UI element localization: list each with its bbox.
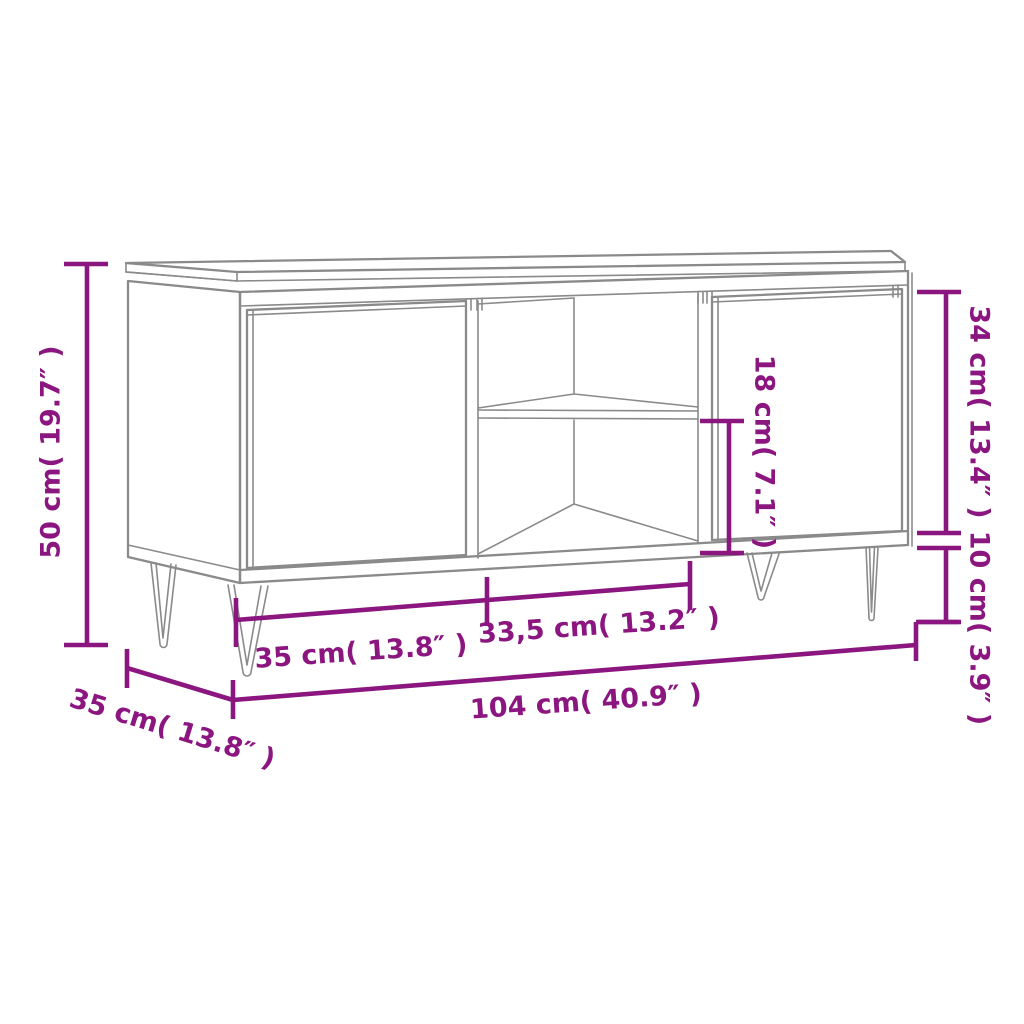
left-door — [247, 301, 466, 568]
dim-label-middle-section-width: 33,5 cm( 13.2″ ) — [477, 602, 721, 650]
cabinet-left-side-panel — [128, 281, 240, 583]
cabinet-dimension-diagram: 50 cm( 19.7″ ) 35 cm( 13.8″ ) 35 cm( 13.… — [0, 0, 1024, 1024]
diagram-canvas: 50 cm( 19.7″ ) 35 cm( 13.8″ ) 35 cm( 13.… — [0, 0, 1024, 1024]
dim-label-door-height: 34 cm( 13.4″ ) — [964, 305, 995, 518]
front-right-leg — [866, 547, 878, 621]
dimension-depth: 35 cm( 13.8″ ) — [66, 649, 279, 775]
cabinet-top-board — [126, 251, 905, 281]
dim-label-lower-compartment-height: 18 cm( 7.1″ ) — [749, 355, 780, 549]
dim-label-overall-height: 50 cm( 19.7″ ) — [36, 345, 67, 558]
back-right-leg — [747, 553, 779, 600]
dimension-door-height: 34 cm( 13.4″ ) — [917, 292, 995, 533]
cabinet-drawing — [126, 251, 912, 676]
right-door — [712, 289, 902, 540]
dimension-overall-height: 50 cm( 19.7″ ) — [36, 264, 109, 645]
back-left-leg — [151, 563, 176, 648]
open-shelf-section — [478, 294, 698, 558]
dimension-leg-height: 10 cm( 3.9″ ) — [917, 531, 995, 725]
dim-label-left-door-width: 35 cm( 13.8″ ) — [253, 629, 468, 675]
dim-label-overall-width: 104 cm( 40.9″ ) — [469, 678, 703, 725]
dim-label-leg-height: 10 cm( 3.9″ ) — [964, 531, 995, 725]
dimension-annotations: 50 cm( 19.7″ ) 35 cm( 13.8″ ) 35 cm( 13.… — [36, 264, 995, 775]
